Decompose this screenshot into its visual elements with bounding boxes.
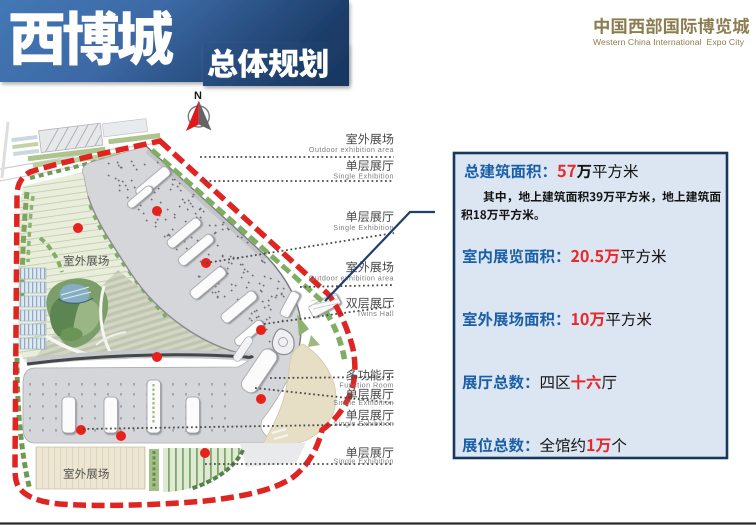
- svg-text:Single Exhibition: Single Exhibition: [333, 223, 394, 232]
- svg-text:Twins Hall: Twins Hall: [357, 309, 394, 318]
- svg-text:Single Exhibition: Single Exhibition: [333, 419, 394, 428]
- svg-text:Single Exhibition: Single Exhibition: [333, 172, 394, 181]
- svg-text:N: N: [194, 90, 202, 102]
- svg-text:Single Exhibition: Single Exhibition: [333, 398, 394, 407]
- svg-text:Function Room: Function Room: [339, 381, 394, 390]
- svg-text:Single Exhibition: Single Exhibition: [333, 457, 394, 466]
- svg-text:Western China International E: Western China International Expo City: [593, 37, 745, 47]
- svg-text:Outdoor exhibition area: Outdoor exhibition area: [309, 145, 394, 154]
